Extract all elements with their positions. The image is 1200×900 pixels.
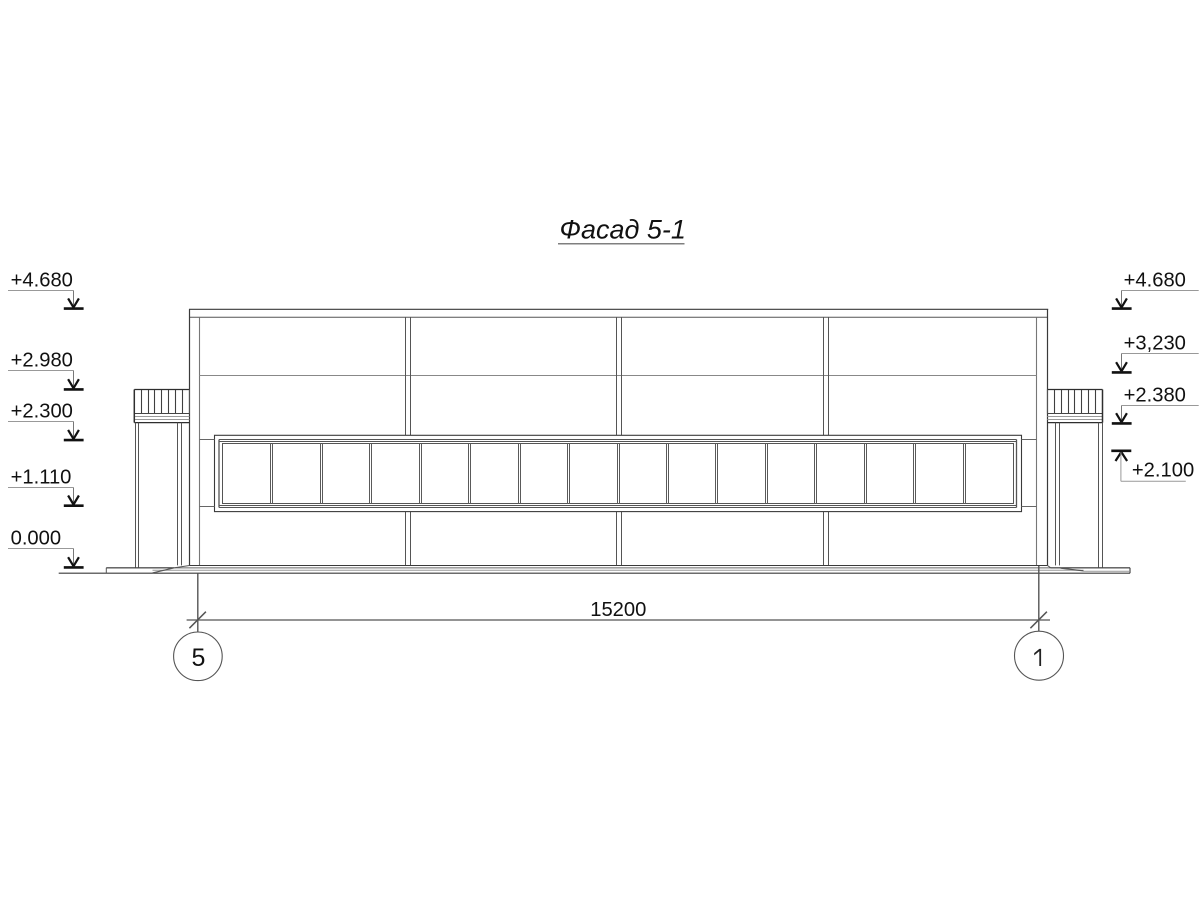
svg-text:+4.680: +4.680 — [11, 270, 73, 292]
svg-text:+3,230: +3,230 — [1124, 333, 1186, 355]
svg-text:+2.980: +2.980 — [11, 350, 73, 372]
svg-text:15200: 15200 — [590, 599, 646, 621]
svg-text:+4.680: +4.680 — [1124, 270, 1186, 292]
svg-text:+2.100: +2.100 — [1132, 460, 1194, 482]
svg-text:+1.110: +1.110 — [11, 467, 72, 489]
svg-text:0.000: 0.000 — [11, 528, 62, 550]
svg-text:5: 5 — [192, 644, 206, 672]
svg-text:Фасад 5-1: Фасад 5-1 — [560, 215, 686, 245]
svg-text:+2.380: +2.380 — [1124, 385, 1186, 407]
svg-text:+2.300: +2.300 — [11, 401, 73, 423]
